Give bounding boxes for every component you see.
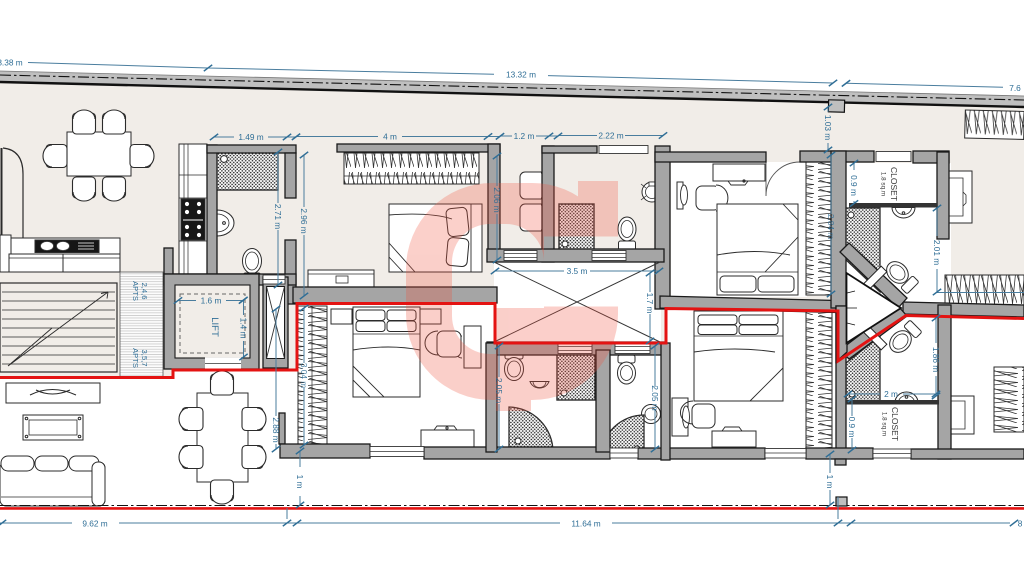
- svg-text:LIFT: LIFT: [209, 317, 220, 337]
- svg-text:0.9 m: 0.9 m: [847, 417, 857, 438]
- svg-text:2,4,6: 2,4,6: [140, 283, 149, 300]
- svg-text:1.8 sq.m: 1.8 sq.m: [880, 172, 887, 196]
- svg-text:1 m: 1 m: [295, 475, 305, 489]
- svg-text:2.88 m: 2.88 m: [271, 417, 281, 442]
- svg-text:3.38 m: 3.38 m: [0, 58, 23, 68]
- svg-text:2.84 m: 2.84 m: [826, 214, 836, 239]
- svg-text:2.05 m: 2.05 m: [494, 378, 504, 403]
- svg-text:CLOSET: CLOSET: [890, 407, 900, 441]
- svg-text:1.03 m: 1.03 m: [823, 115, 833, 140]
- svg-text:4 m: 4 m: [383, 132, 397, 142]
- svg-text:1.49 m: 1.49 m: [238, 132, 263, 142]
- svg-text:2.01 m: 2.01 m: [932, 240, 942, 265]
- svg-text:11.64 m: 11.64 m: [571, 519, 600, 529]
- svg-text:9.62 m: 9.62 m: [82, 519, 107, 529]
- svg-text:1.8 sq.m: 1.8 sq.m: [881, 412, 888, 436]
- svg-text:2 m: 2 m: [884, 389, 898, 399]
- svg-text:2.22 m: 2.22 m: [598, 131, 623, 141]
- svg-text:2.05 m: 2.05 m: [650, 385, 660, 410]
- svg-text:8: 8: [1018, 519, 1023, 529]
- svg-text:CLOSET: CLOSET: [889, 167, 899, 201]
- svg-text:3.5 m: 3.5 m: [567, 266, 588, 276]
- svg-text:1.4 m: 1.4 m: [239, 318, 249, 339]
- svg-text:1.86 m: 1.86 m: [931, 347, 941, 372]
- svg-text:1 m: 1 m: [825, 475, 835, 489]
- svg-text:APTS: APTS: [131, 281, 140, 301]
- svg-text:7.6: 7.6: [1009, 83, 1021, 93]
- svg-text:2.06 m: 2.06 m: [492, 187, 502, 212]
- svg-text:2.71 m: 2.71 m: [273, 204, 283, 229]
- svg-text:2.96 m: 2.96 m: [299, 208, 309, 233]
- svg-text:1.7 m: 1.7 m: [645, 293, 655, 314]
- svg-text:APTS: APTS: [131, 348, 140, 368]
- svg-text:0.9 m: 0.9 m: [849, 175, 859, 196]
- svg-text:1.6 m: 1.6 m: [201, 296, 222, 306]
- svg-text:1.2 m: 1.2 m: [514, 131, 535, 141]
- svg-text:3.04 m: 3.04 m: [299, 363, 309, 388]
- svg-text:13.32 m: 13.32 m: [506, 70, 536, 80]
- svg-text:3,5,7: 3,5,7: [140, 350, 149, 367]
